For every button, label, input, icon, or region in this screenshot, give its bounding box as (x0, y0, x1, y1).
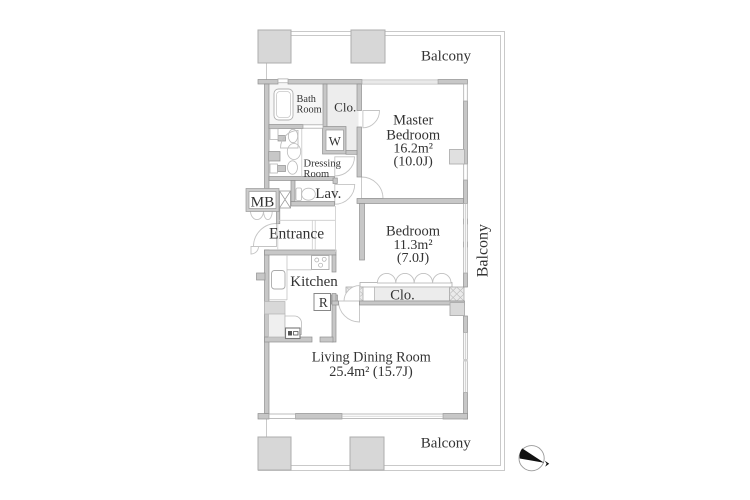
svg-text:Balcony: Balcony (421, 435, 471, 451)
svg-text:Clo.: Clo. (334, 99, 356, 114)
svg-text:(7.0J): (7.0J) (397, 251, 430, 266)
svg-text:Balcony: Balcony (474, 224, 491, 277)
svg-text:Clo.: Clo. (390, 288, 415, 304)
svg-text:(10.0J): (10.0J) (394, 154, 434, 169)
svg-text:Dressing: Dressing (304, 158, 342, 169)
svg-text:Master: Master (393, 113, 433, 129)
svg-text:25.4m² (15.7J): 25.4m² (15.7J) (329, 364, 413, 380)
svg-text:Kitchen: Kitchen (290, 274, 338, 290)
svg-text:R: R (319, 295, 328, 310)
svg-text:Entrance: Entrance (269, 225, 324, 242)
svg-text:Lav.: Lav. (315, 186, 341, 202)
svg-text:Room: Room (297, 104, 322, 115)
svg-text:Room: Room (304, 169, 330, 180)
svg-text:MB: MB (251, 194, 275, 211)
svg-text:Balcony: Balcony (421, 48, 471, 64)
svg-text:W: W (329, 133, 342, 148)
